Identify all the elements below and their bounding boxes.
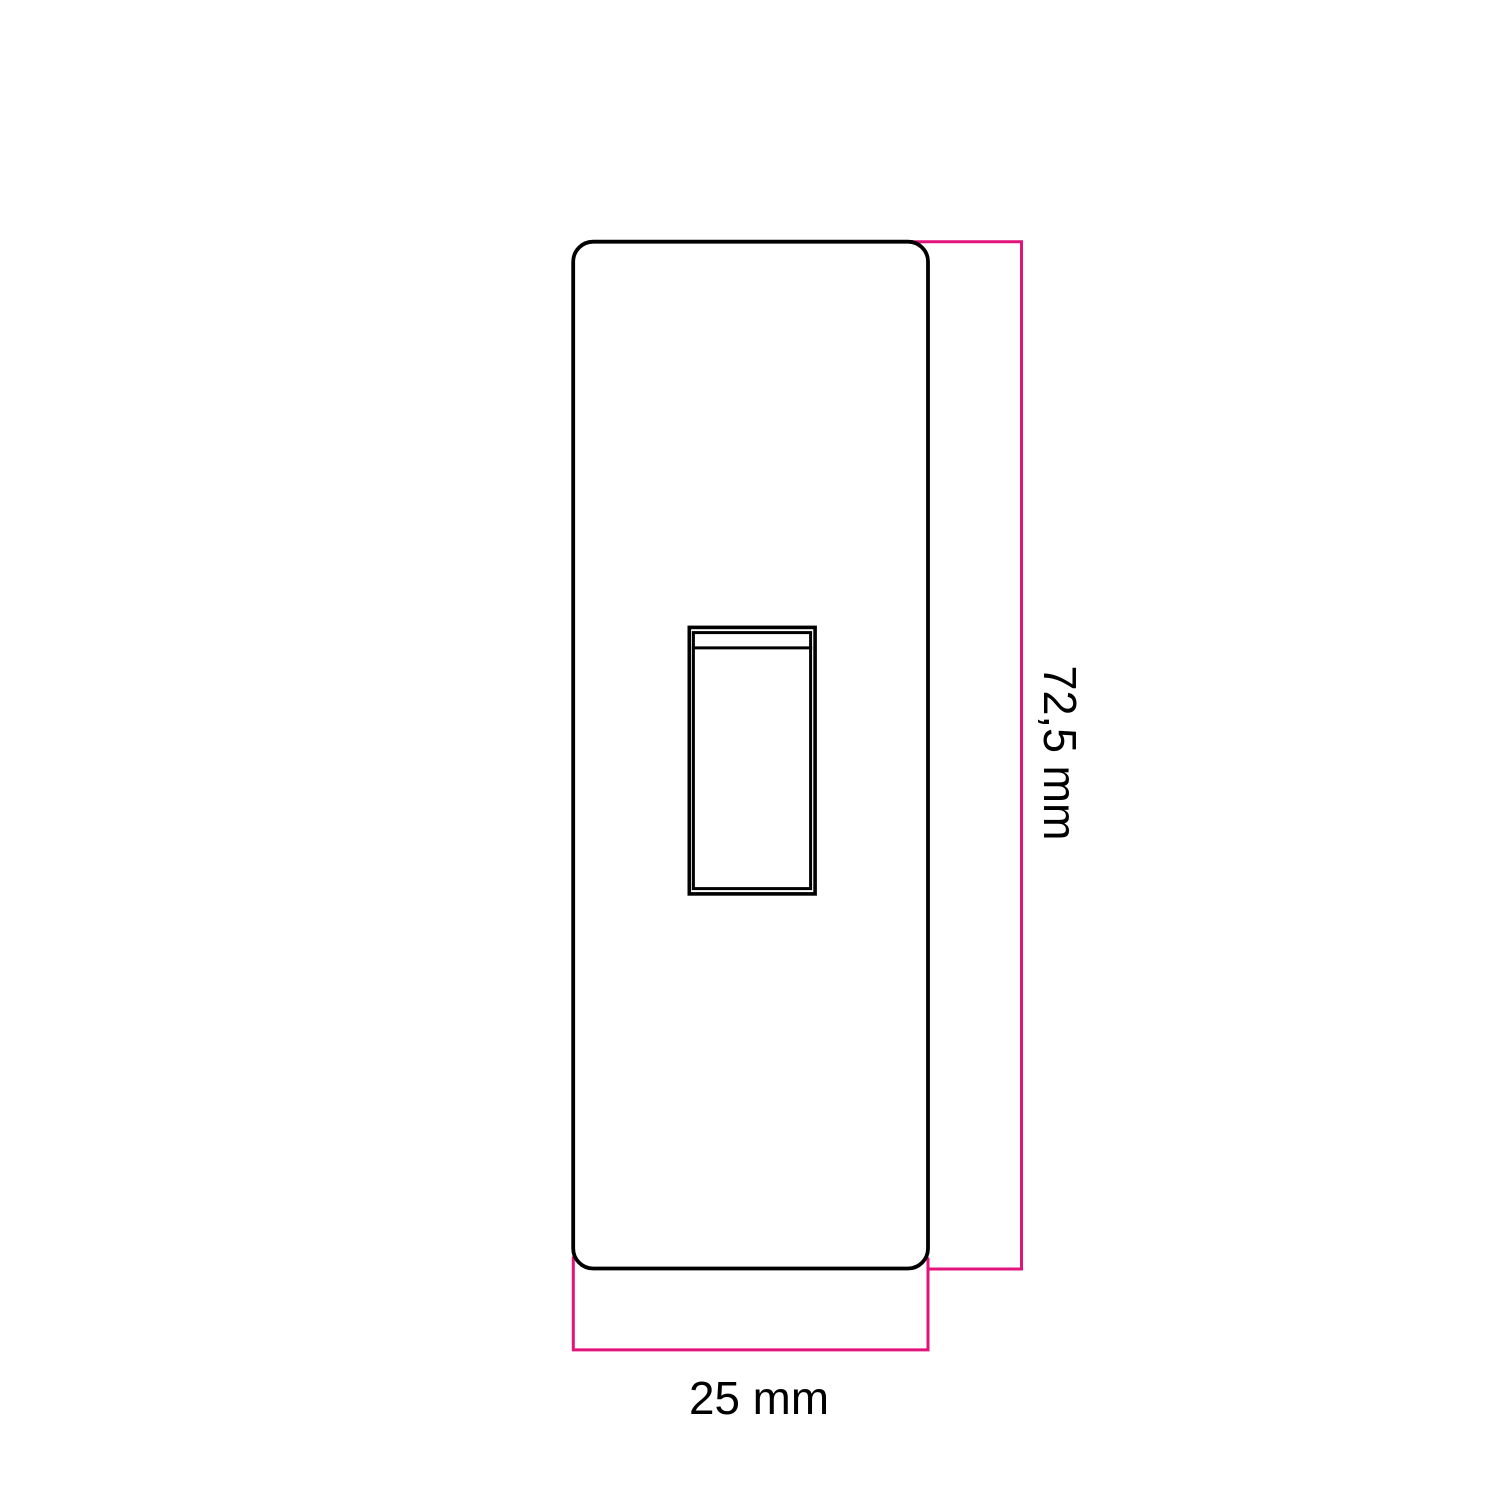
svg-text:72,5 mm: 72,5 mm (1034, 666, 1086, 841)
svg-text:25 mm: 25 mm (689, 1372, 829, 1424)
